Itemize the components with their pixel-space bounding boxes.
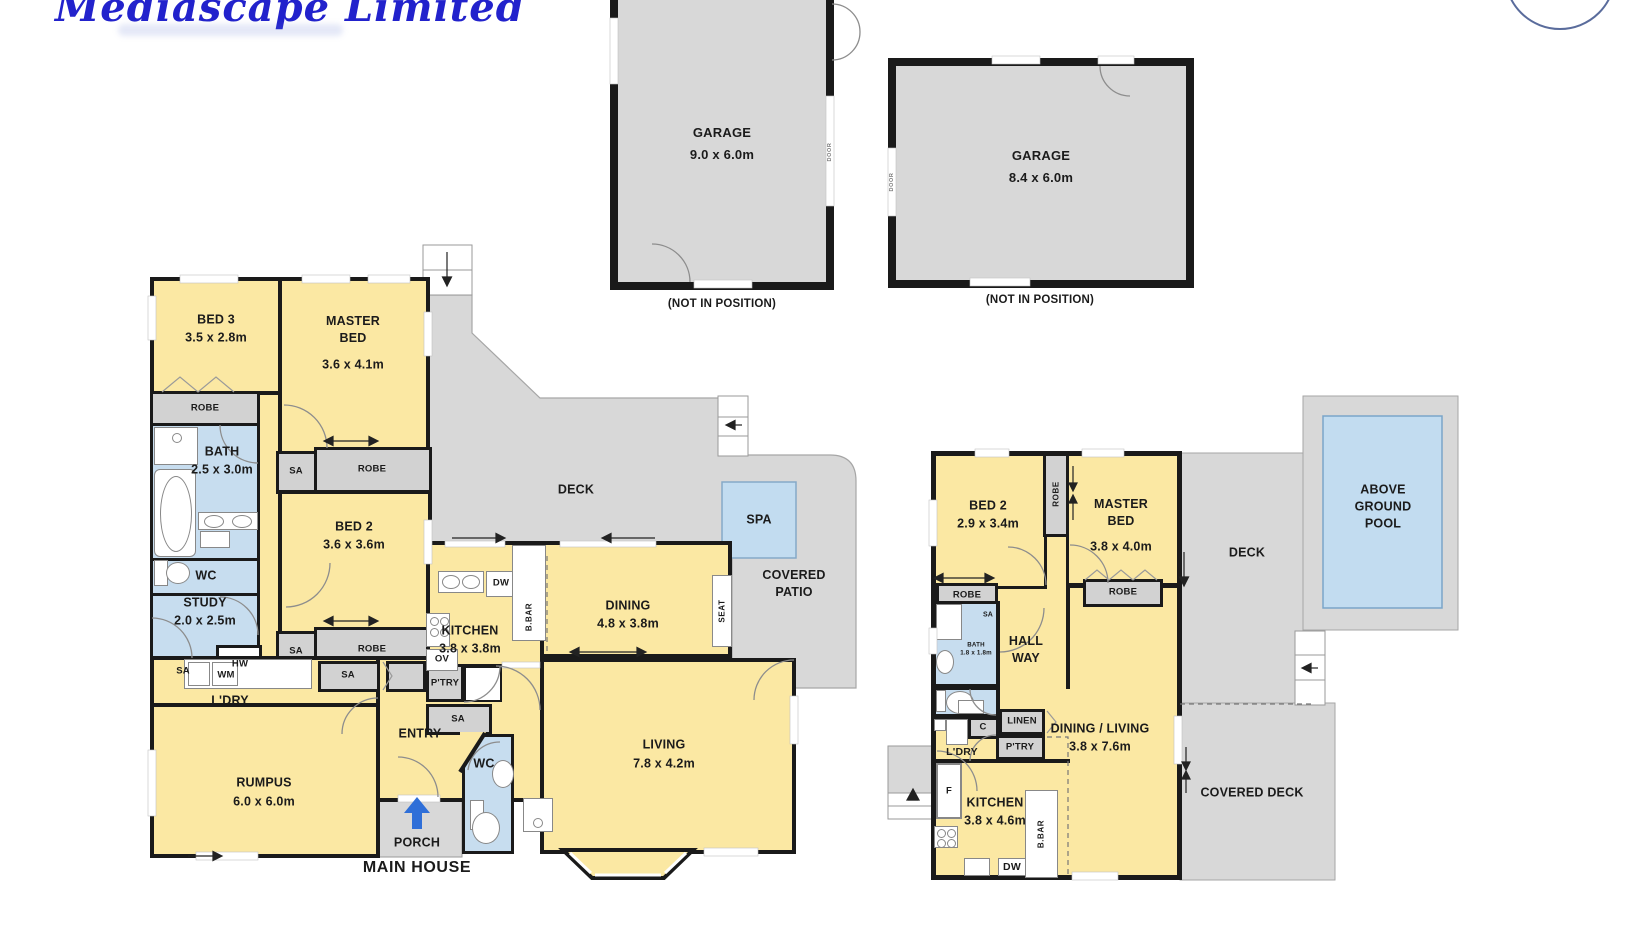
label-robe-bed3: ROBE	[191, 403, 219, 416]
label-minor-master: MASTER BED	[1089, 496, 1153, 530]
label-dining: DINING	[606, 598, 651, 615]
label-minor-dw: DW	[1003, 860, 1021, 874]
label-master-dims: 3.6 x 4.1m	[322, 357, 384, 374]
label-wc1: WC	[195, 568, 216, 585]
label-porch: PORCH	[394, 835, 440, 852]
label-seat: SEAT	[718, 599, 727, 622]
laundry-sink-icon	[188, 662, 210, 686]
garage-1	[610, 0, 834, 290]
garage1-dims: 9.0 x 6.0m	[690, 146, 754, 164]
basin-icon	[936, 650, 954, 674]
garage2-door-label: DOOR	[889, 173, 895, 192]
label-minor-robe-master: ROBE	[1109, 587, 1137, 600]
label-minor-sa: SA	[983, 610, 993, 619]
label-covered-patio: COVERED PATIO	[756, 567, 832, 601]
label-robe-bed2: ROBE	[358, 644, 386, 657]
label-minor-ldry: L'DRY	[946, 745, 978, 759]
laundry-tub-icon	[946, 719, 968, 745]
label-wc2: WC	[473, 756, 494, 773]
label-living-dims: 7.8 x 4.2m	[633, 756, 695, 773]
shower-head-icon	[172, 433, 182, 443]
sa-laundry-2	[386, 661, 426, 692]
label-deck: DECK	[558, 482, 594, 499]
label-spa: SPA	[746, 512, 771, 529]
label-bbar-main: B.BAR	[525, 603, 534, 631]
label-ptry: P'TRY	[431, 678, 459, 691]
garage1-note: (NOT IN POSITION)	[668, 297, 776, 313]
burner-icon	[947, 829, 956, 838]
garage1-name: GARAGE	[693, 124, 751, 142]
sink-bowl-icon	[462, 575, 480, 589]
sink-bowl-icon	[442, 575, 460, 589]
label-sa-laundry: SA	[341, 670, 355, 683]
basin-icon	[204, 515, 224, 528]
label-minor-bed2-dims: 2.9 x 3.4m	[957, 516, 1019, 533]
label-minor-ptry: P'TRY	[1006, 742, 1034, 755]
label-minor-robe-vert: ROBE	[1052, 481, 1061, 507]
label-wm: WM	[217, 670, 234, 683]
burner-icon	[947, 839, 956, 848]
label-minor-robe-bed2: ROBE	[953, 590, 981, 603]
label-ov: OV	[435, 654, 449, 667]
toilet-cistern-icon	[936, 690, 946, 712]
basin-icon	[232, 515, 252, 528]
label-study: STUDY	[183, 595, 226, 612]
garage2-note: (NOT IN POSITION)	[986, 293, 1094, 309]
label-minor-hallway: HALL WAY	[1004, 633, 1048, 667]
main-house-caption: MAIN HOUSE	[363, 857, 471, 879]
garage1-door-label: DOOR	[827, 143, 833, 162]
label-minor-bath-dims: 1.8 x 1.8m	[960, 649, 992, 656]
label-minor-deck: DECK	[1229, 545, 1265, 562]
label-rumpus: RUMPUS	[236, 775, 291, 792]
label-minor-master-dims: 3.8 x 4.0m	[1090, 539, 1152, 556]
label-bath-dims: 2.5 x 3.0m	[191, 462, 253, 479]
label-minor-kitchen: KITCHEN	[967, 795, 1024, 812]
label-bed2: BED 2	[335, 519, 373, 536]
label-covered-deck: COVERED DECK	[1200, 785, 1303, 802]
shower-icon	[936, 604, 962, 640]
label-minor-dining-living-dims: 3.8 x 7.6m	[1069, 739, 1131, 756]
burner-icon	[937, 829, 946, 838]
toilet-icon	[472, 812, 500, 844]
kitchen-sink-icon	[964, 858, 990, 876]
garage2-name: GARAGE	[1012, 147, 1070, 165]
label-bed3-dims: 3.5 x 2.8m	[185, 330, 247, 347]
label-study-dims: 2.0 x 2.5m	[174, 613, 236, 630]
tv-knob-icon	[533, 818, 543, 828]
label-dining-dims: 4.8 x 3.8m	[597, 616, 659, 633]
label-minor-f: F	[946, 786, 952, 799]
burner-icon	[430, 617, 439, 626]
label-living: LIVING	[643, 737, 686, 754]
burner-icon	[430, 628, 439, 637]
floor-plan-page: Mediascape Limited	[0, 0, 1646, 926]
bathtub-bowl-icon	[160, 476, 192, 552]
toilet-icon	[166, 562, 190, 584]
label-minor-linen: LINEN	[1007, 716, 1037, 729]
label-pool: ABOVE GROUND POOL	[1350, 482, 1416, 533]
label-minor-bbar: B.BAR	[1037, 820, 1046, 848]
label-kitchen: KITCHEN	[442, 623, 499, 640]
label-minor-bed2: BED 2	[969, 498, 1007, 515]
label-sa-study: SA	[176, 666, 190, 679]
label-bed3: BED 3	[197, 312, 235, 329]
label-rumpus-dims: 6.0 x 6.0m	[233, 794, 295, 811]
label-sa-entry: SA	[451, 714, 465, 727]
label-master: MASTER BED	[320, 313, 386, 347]
label-robe-master: ROBE	[358, 464, 386, 477]
wall	[1066, 587, 1070, 689]
label-entry: ENTRY	[399, 726, 442, 743]
label-minor-c: C	[979, 722, 986, 735]
label-minor-bath: BATH	[967, 641, 985, 648]
wc-shelf-icon	[958, 700, 984, 714]
label-bed2-dims: 3.6 x 3.6m	[323, 537, 385, 554]
burner-icon	[937, 839, 946, 848]
label-ldry: L'DRY	[211, 693, 249, 710]
label-minor-dining-living: DINING / LIVING	[1051, 721, 1150, 738]
room-bed2	[278, 490, 432, 637]
garage2-dims: 8.4 x 6.0m	[1009, 169, 1073, 187]
cupboard-main	[464, 666, 502, 702]
wc1-basin-icon	[200, 531, 230, 548]
label-minor-kitchen-dims: 3.8 x 4.6m	[964, 813, 1026, 830]
label-sa-master: SA	[289, 466, 303, 479]
label-sa-bed2: SA	[289, 646, 303, 659]
label-dw: DW	[493, 578, 509, 591]
wc2-basin-icon	[492, 760, 514, 788]
label-bath: BATH	[205, 444, 240, 461]
washing-machine-icon	[934, 719, 946, 731]
